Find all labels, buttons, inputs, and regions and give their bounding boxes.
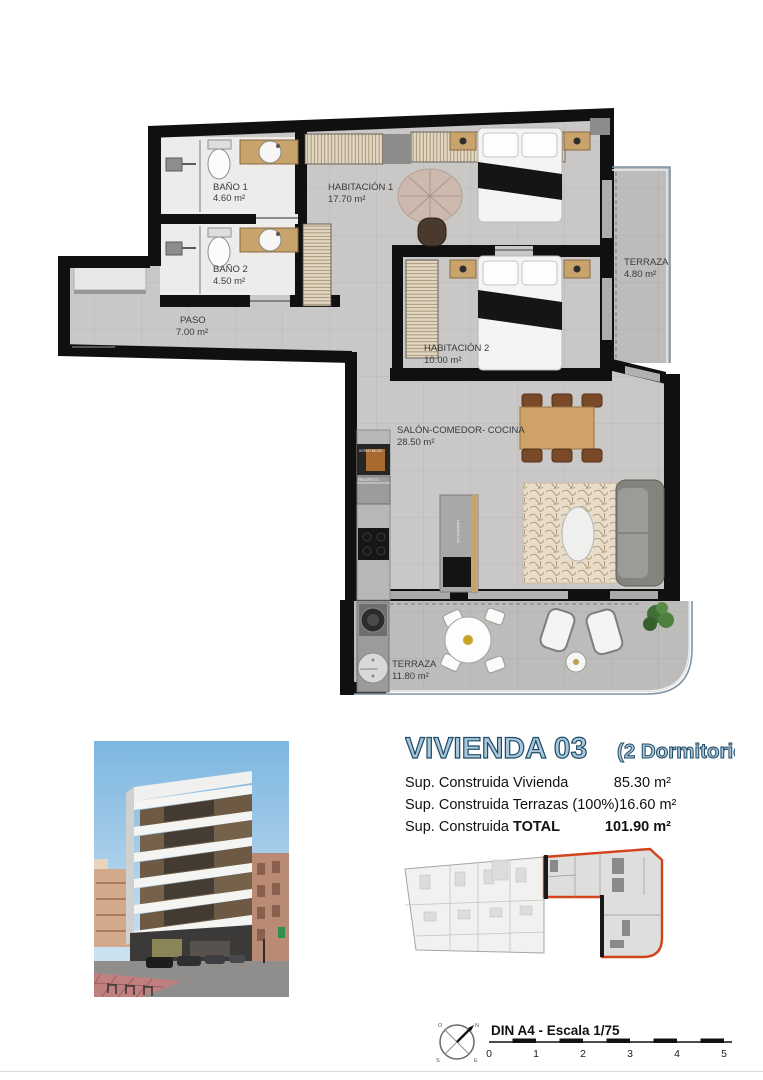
surface-row: Sup. Construida TOTAL 101.90 m² <box>405 816 671 838</box>
storefront <box>190 941 230 957</box>
building-photo <box>94 741 289 997</box>
room-area: 4.60 m² <box>213 193 245 204</box>
surface-table: Sup. Construida Vivienda 85.30 m² Sup. C… <box>405 772 671 838</box>
room-label: HABITACIÓN 1 <box>328 182 393 193</box>
pillar <box>590 118 610 135</box>
surface-value: 85.30 m² <box>614 772 671 794</box>
key-plan <box>400 843 700 978</box>
hob-icon <box>358 528 389 560</box>
pharmacy-sign <box>278 927 285 938</box>
entry-recess <box>74 266 146 290</box>
storefront <box>152 939 182 957</box>
dining-set-icon <box>520 394 602 462</box>
room-label: SALÓN-COMEDOR- COCINA <box>397 425 525 436</box>
room-area: 7.00 m² <box>176 327 208 338</box>
surface-row: Sup. Construida Vivienda 85.30 m² <box>405 772 671 794</box>
compass-w: O <box>438 1023 443 1029</box>
fridge-label: FRIGORÍFICO <box>358 478 379 482</box>
sink-icon <box>240 228 298 252</box>
unit-subtitle: (2 Dormitorios) <box>617 740 735 763</box>
entry-sill <box>74 290 146 294</box>
surface-label: Sup. Construida Vivienda <box>405 772 568 794</box>
svg-text:0: 0 <box>486 1048 492 1060</box>
scale-label: DIN A4 - Escala 1/75 <box>491 1023 620 1038</box>
room-area: 10.00 m² <box>424 355 462 366</box>
surface-label: Sup. Construida TOTAL <box>405 816 560 838</box>
oven-label: HORNO MICRO <box>359 449 383 453</box>
room-label: TERRAZA <box>624 257 669 268</box>
compass-n: N <box>475 1023 479 1029</box>
room-area: 4.50 m² <box>213 276 245 287</box>
bottom-separator <box>0 1071 763 1072</box>
unit-title: VIVIENDA 03 <box>405 732 587 765</box>
surface-row: Sup. Construida Terrazas (100%) 16.60 m² <box>405 794 671 816</box>
room-label: BAÑO 1 <box>213 182 248 193</box>
dishwasher-label: LAVAVAJILLAS <box>456 520 460 544</box>
scale-bar: DIN A4 - Escala 1/75 0 1 2 3 4 5 <box>486 1023 732 1060</box>
washing-column: CALENTADOR <box>357 602 389 692</box>
wardrobe-icon <box>303 224 331 306</box>
room-area: 4.80 m² <box>624 269 656 280</box>
armchair-icon <box>418 218 446 246</box>
svg-text:1: 1 <box>533 1048 539 1060</box>
svg-text:2: 2 <box>580 1048 586 1060</box>
keyplan-unit-03 <box>544 849 662 957</box>
surface-value: 16.60 m² <box>619 794 676 816</box>
sofa-icon <box>616 480 664 586</box>
room-label: BAÑO 2 <box>213 264 248 275</box>
room-label: PASO <box>180 315 206 326</box>
toilet-icon <box>208 140 231 179</box>
keyplan-other-units <box>405 857 544 953</box>
title-block: VIVIENDA 03 (2 Dormitorios) <box>405 727 735 769</box>
floor-plan: HORNO MICRO FRIGORÍFICO LAVAVAJILLAS <box>0 100 763 705</box>
coffee-table-icon <box>562 507 594 561</box>
oven-icon: HORNO MICRO <box>357 444 390 475</box>
room-area: 11.80 m² <box>392 671 429 682</box>
compass-icon: O N S E <box>436 1023 479 1064</box>
toilet-icon <box>208 228 231 267</box>
bed-icon <box>478 128 562 222</box>
surface-value: 101.90 m² <box>605 816 671 838</box>
fridge-icon: FRIGORÍFICO <box>357 476 390 504</box>
brochure-page: HORNO MICRO FRIGORÍFICO LAVAVAJILLAS <box>0 0 763 1080</box>
main-building <box>126 771 252 967</box>
footer-scale: O N S E DIN A4 - Escala 1/75 0 1 2 3 4 5 <box>425 1012 745 1072</box>
compass-s: S <box>436 1058 440 1064</box>
scale-ticks: 0 1 2 3 4 5 <box>486 1048 727 1060</box>
svg-text:4: 4 <box>674 1048 680 1060</box>
surface-label: Sup. Construida Terrazas (100%) <box>405 794 619 816</box>
kitchen-island: LAVAVAJILLAS <box>440 495 478 592</box>
bed-icon <box>478 256 562 370</box>
svg-text:5: 5 <box>721 1048 727 1060</box>
room-label: TERRAZA <box>392 659 437 670</box>
room-area: 17.70 m² <box>328 194 366 205</box>
heater-label: CALENTADOR <box>360 667 378 671</box>
sink-icon <box>240 140 298 164</box>
room-label: HABITACIÓN 2 <box>424 343 489 354</box>
svg-text:3: 3 <box>627 1048 633 1060</box>
room-area: 28.50 m² <box>397 437 435 448</box>
wardrobe-icon <box>305 134 383 164</box>
compass-e: E <box>474 1058 478 1064</box>
